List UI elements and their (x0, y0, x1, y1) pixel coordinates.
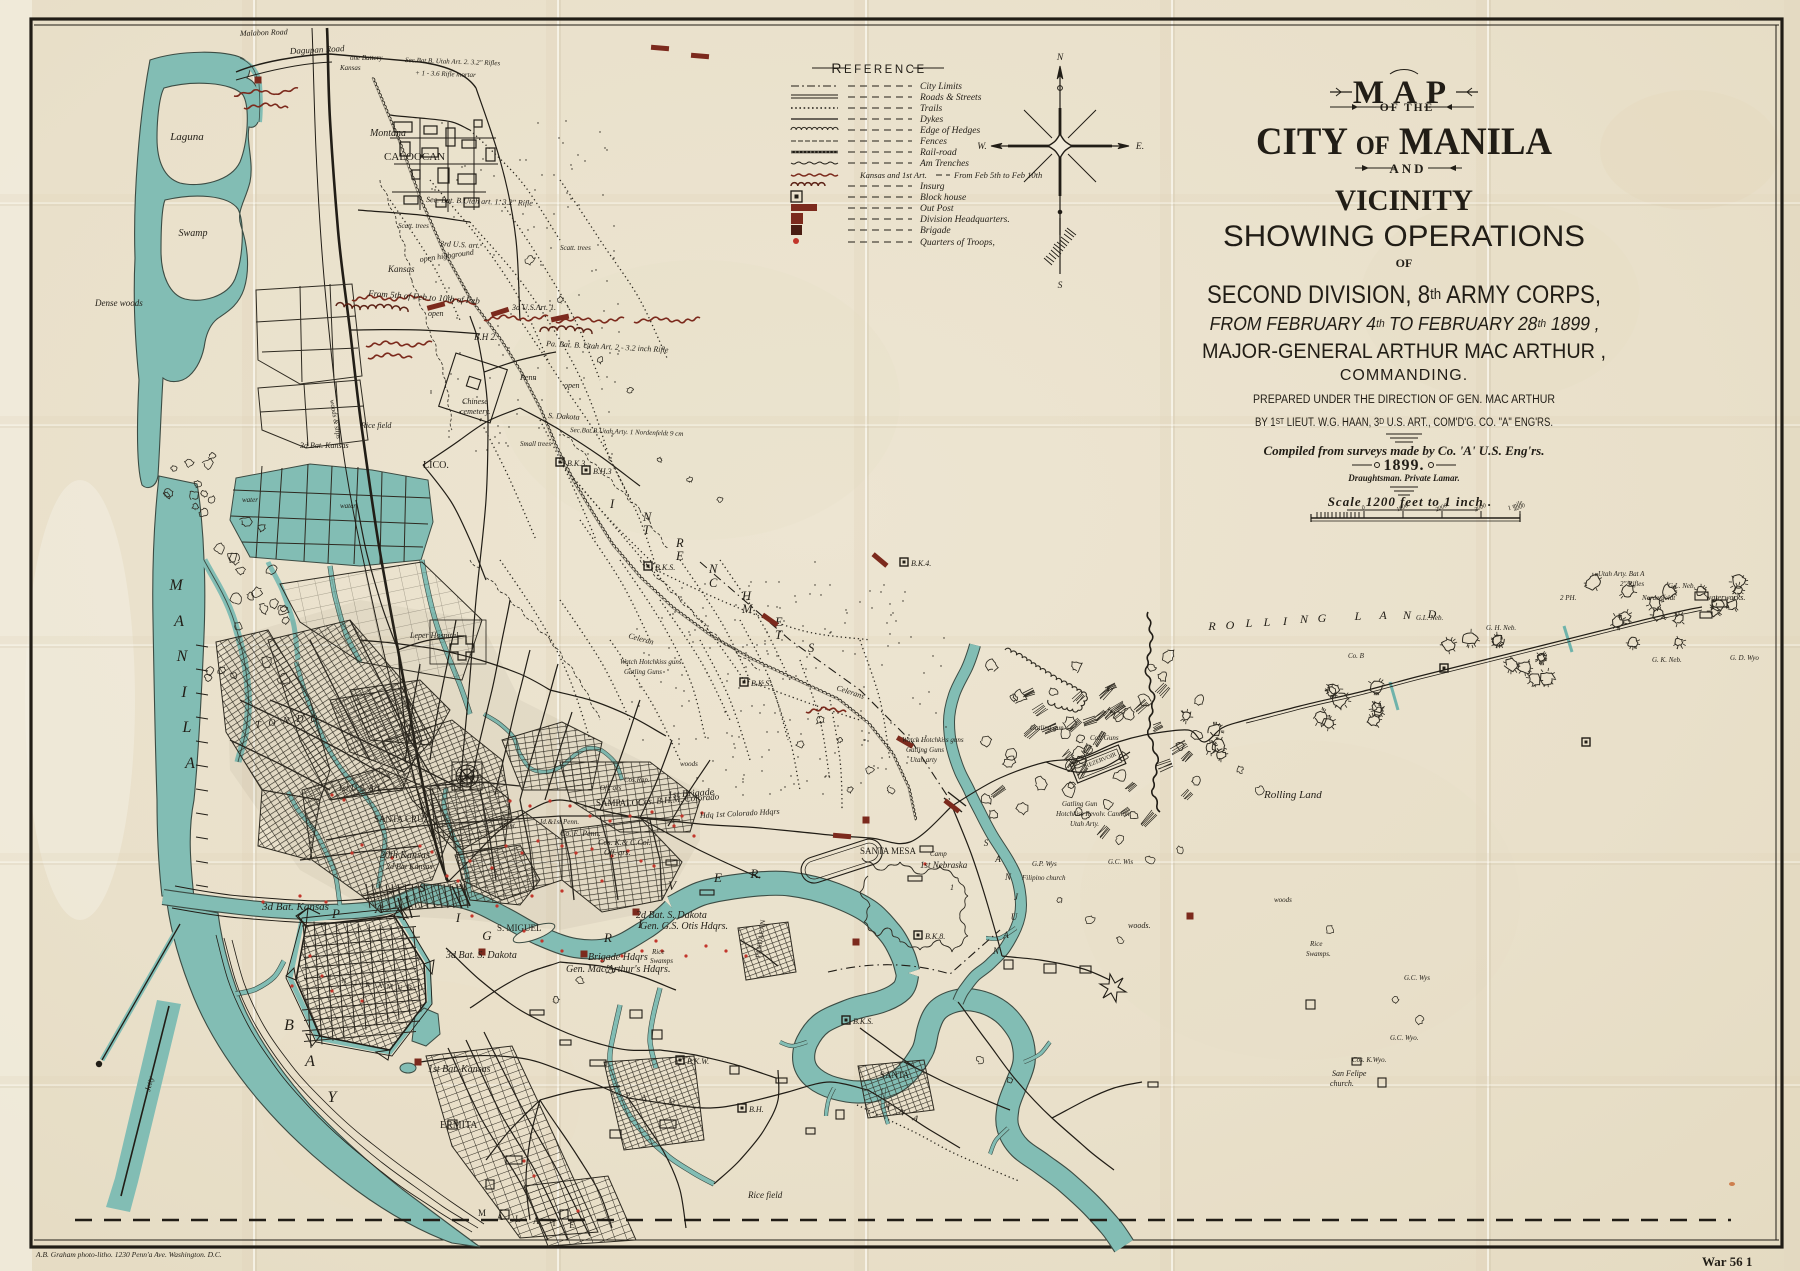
svg-text:R: R (366, 981, 371, 989)
svg-text:1st U.S. Art.: 1st U.S. Art. (338, 783, 382, 793)
svg-text:Cos. K.Wyo.: Cos. K.Wyo. (1352, 1056, 1387, 1064)
svg-text:PREPARED UNDER THE DIRECTION O: PREPARED UNDER THE DIRECTION OF GEN. MAC… (1253, 394, 1555, 406)
svg-text:N: N (176, 648, 189, 665)
svg-text:SHOWING OPERATIONS: SHOWING OPERATIONS (1223, 220, 1585, 253)
svg-text:1899.: 1899. (1384, 457, 1425, 474)
svg-text:B.K.S.: B.K.S. (853, 1017, 873, 1026)
svg-text:Swamps: Swamps (650, 957, 673, 965)
svg-text:Cos.Rap.: Cos.Rap. (624, 776, 650, 784)
svg-text:San Felipe: San Felipe (1332, 1069, 1367, 1078)
svg-text:A: A (1378, 608, 1387, 622)
svg-text:S. MIGUEL: S. MIGUEL (497, 923, 542, 933)
svg-text:Laguna: Laguna (169, 131, 204, 143)
svg-text:Utah arty: Utah arty (910, 756, 938, 764)
svg-text:Gatling Guns: Gatling Guns (624, 668, 662, 676)
svg-text:CITY OF MANILA: CITY OF MANILA (1256, 120, 1552, 163)
svg-text:E: E (569, 1220, 575, 1230)
svg-text:O: O (268, 718, 275, 729)
svg-text:S: S (419, 880, 426, 895)
svg-text:2″ Rifles: 2″ Rifles (1620, 580, 1644, 588)
svg-text:Rail-road: Rail-road (919, 148, 957, 158)
svg-text:Malabon Road: Malabon Road (239, 27, 289, 38)
svg-text:Division Headquarters.: Division Headquarters. (919, 215, 1010, 225)
svg-text:I: I (637, 916, 643, 931)
svg-text:G: G (482, 928, 492, 943)
svg-text:Filipino church: Filipino church (1021, 874, 1066, 882)
svg-text:Rolling Land: Rolling Land (1263, 789, 1322, 801)
svg-text:A: A (641, 1093, 647, 1102)
svg-text:O: O (417, 984, 422, 992)
svg-text:War 56 1: War 56 1 (1702, 1254, 1752, 1269)
svg-text:ERMITA: ERMITA (440, 1120, 478, 1131)
svg-text:Scale 1200 feet to 1 inch .: Scale 1200 feet to 1 inch . (1328, 494, 1493, 509)
svg-text:Roads & Streets: Roads & Streets (919, 93, 982, 103)
svg-text:M: M (168, 577, 184, 594)
svg-text:Camp: Camp (930, 850, 947, 858)
svg-text:G. H. Neb.: G. H. Neb. (1486, 624, 1516, 632)
svg-text:N: N (1056, 53, 1064, 63)
svg-text:1: 1 (950, 883, 954, 892)
svg-text:Dykes: Dykes (919, 115, 944, 125)
svg-text:B.K.S.: B.K.S. (655, 563, 675, 572)
svg-text:S: S (984, 838, 989, 848)
svg-text:Off. qrs.: Off. qrs. (604, 848, 630, 857)
svg-text:Chinese: Chinese (462, 397, 488, 406)
svg-text:3d Bat. Kansas: 3d Bat. Kansas (299, 441, 349, 450)
svg-text:G.P. Wys: G.P. Wys (1032, 860, 1057, 868)
svg-text:church.: church. (1330, 1079, 1354, 1088)
svg-text:AND: AND (1389, 161, 1426, 176)
svg-text:N: N (1402, 608, 1412, 622)
svg-text:woods.: woods. (1128, 921, 1150, 930)
svg-text:SAMPALOC: SAMPALOC (596, 798, 644, 808)
svg-text:U: U (397, 984, 402, 992)
svg-text:COMMANDING.: COMMANDING. (1340, 367, 1468, 384)
svg-text:water: water (340, 502, 356, 510)
svg-text:B.K.S.: B.K.S. (751, 679, 771, 688)
svg-text:Brigade: Brigade (920, 226, 951, 236)
svg-text:Rice: Rice (1309, 940, 1322, 948)
svg-text:Gen. G.S. Otis Hdqrs.: Gen. G.S. Otis Hdqrs. (640, 921, 728, 932)
svg-text:R: R (675, 536, 684, 550)
svg-text:L: L (1354, 609, 1362, 623)
svg-text:A: A (184, 755, 195, 772)
svg-text:Co. B: Co. B (1348, 652, 1365, 660)
svg-text:Brigade Hdqrs: Brigade Hdqrs (588, 952, 648, 963)
svg-text:G.C. Wys: G.C. Wys (1404, 974, 1430, 982)
svg-text:Scatt. trees: Scatt. trees (398, 222, 429, 230)
svg-text:D: D (295, 714, 304, 725)
svg-text:Trails: Trails (920, 104, 942, 114)
svg-text:SECOND DIVISION, 8th ARMY CORP: SECOND DIVISION, 8th ARMY CORPS, (1207, 281, 1601, 309)
svg-text:B.K.4.: B.K.4. (911, 559, 931, 568)
svg-text:B.K.8.: B.K.8. (925, 932, 945, 941)
svg-text:Colt Guns: Colt Guns (1090, 734, 1119, 742)
svg-text:I: I (455, 910, 461, 925)
svg-text:3d U.S.Art. 1.: 3d U.S.Art. 1. (511, 303, 556, 312)
svg-text:Gatling Guns: Gatling Guns (906, 746, 944, 754)
svg-text:From Feb 5th to Feb 10th: From Feb 5th to Feb 10th (953, 170, 1042, 180)
svg-text:Gen. Mac Arthur's Hdqrs.: Gen. Mac Arthur's Hdqrs. (566, 964, 670, 975)
svg-text:Gatling gun: Gatling gun (1030, 724, 1064, 732)
svg-text:I: I (180, 684, 187, 701)
svg-text:one Battery: one Battery (350, 54, 383, 62)
svg-text:Off. qrs: Off. qrs (600, 784, 622, 792)
svg-text:SANTA CRUZ: SANTA CRUZ (374, 814, 429, 824)
svg-text:B.H 2.: B.H 2. (474, 332, 497, 342)
svg-text:O: O (310, 714, 317, 725)
svg-text:D: D (1427, 607, 1437, 621)
svg-text:MAJOR-GENERAL ARTHUR MAC ARTHU: MAJOR-GENERAL ARTHUR MAC ARTHUR , (1202, 340, 1606, 363)
svg-text:SANTA: SANTA (880, 1070, 910, 1080)
svg-text:O: O (669, 1097, 675, 1106)
svg-text:A: A (1002, 930, 1009, 940)
svg-text:open: open (428, 309, 444, 318)
svg-text:Swamps.: Swamps. (1306, 950, 1331, 958)
svg-text:C: C (655, 1095, 660, 1104)
svg-text:Compiled from surveys made by: Compiled from surveys made by Co. 'A' U.… (1264, 443, 1545, 458)
svg-text:G.C. Wis: G.C. Wis (1108, 858, 1133, 866)
svg-text:Mont.: Mont. (499, 822, 517, 830)
svg-text:W.: W. (977, 142, 986, 152)
svg-text:cemetery.: cemetery. (460, 407, 490, 416)
svg-text:C: C (709, 576, 718, 590)
svg-text:OF: OF (1396, 256, 1413, 270)
svg-text:SANTA MESA: SANTA MESA (860, 846, 917, 856)
svg-text:N: N (341, 977, 346, 985)
svg-text:N: N (1299, 612, 1309, 626)
svg-text:Draughtsman. Private Lamar.: Draughtsman. Private Lamar. (1347, 473, 1460, 483)
svg-text:N: N (1004, 872, 1012, 882)
svg-text:B.H.3: B.H.3 (593, 467, 612, 476)
svg-text:Utah Arty. Bat A: Utah Arty. Bat A (1598, 570, 1645, 578)
svg-text:Prison: Prison (457, 775, 474, 781)
svg-text:Nordenfeldt: Nordenfeldt (1641, 594, 1676, 602)
svg-text:A: A (994, 854, 1001, 864)
svg-text:Block house: Block house (920, 193, 966, 203)
svg-text:Watch Hotchkiss guns: Watch Hotchkiss guns (902, 736, 964, 744)
svg-text:G: G (1318, 611, 1327, 625)
svg-text:open: open (564, 381, 580, 390)
svg-text:VICINITY: VICINITY (1335, 184, 1473, 217)
svg-text:Am Trenches: Am Trenches (919, 159, 969, 169)
svg-text:M: M (478, 1208, 486, 1218)
svg-text:2d Bat. S. Dakota: 2d Bat. S. Dakota (636, 910, 707, 921)
svg-text:B.K.W.: B.K.W. (687, 1057, 709, 1066)
svg-text:woods: woods (680, 760, 698, 768)
svg-text:Quarters of Troops,: Quarters of Troops, (920, 237, 995, 248)
svg-text:A: A (533, 1216, 540, 1226)
svg-text:N: N (642, 510, 652, 524)
svg-text:Small trees: Small trees (520, 440, 551, 448)
svg-text:A: A (374, 901, 383, 916)
svg-text:City Limits: City Limits (920, 82, 962, 92)
svg-text:waterworks.: waterworks. (1706, 593, 1745, 602)
svg-text:2 PH.: 2 PH. (1560, 594, 1577, 602)
svg-text:L: L (1263, 615, 1271, 629)
svg-text:R: R (603, 930, 612, 945)
svg-text:water: water (242, 496, 258, 504)
svg-text:E.: E. (1135, 142, 1144, 152)
svg-text:G.L. Neb.: G.L. Neb. (1668, 582, 1695, 590)
svg-text:A.B. Graham photo-litho. 1230: A.B. Graham photo-litho. 1230 Penn'a Ave… (35, 1250, 222, 1259)
svg-text:Kansas and 1st Art.: Kansas and 1st Art. (859, 170, 927, 180)
svg-text:S: S (1058, 281, 1063, 291)
svg-text:A: A (377, 982, 382, 990)
svg-text:CALOOCAN: CALOOCAN (384, 151, 445, 163)
svg-text:Montana: Montana (369, 128, 406, 139)
svg-text:A: A (173, 613, 184, 630)
svg-text:Fences: Fences (919, 137, 947, 147)
svg-text:Insurg: Insurg (919, 182, 945, 192)
svg-text:Out Post: Out Post (920, 204, 954, 214)
svg-text:R.: R. (749, 866, 761, 881)
svg-text:L: L (1245, 616, 1253, 630)
svg-text:3d Bat. S. Dakota: 3d Bat. S. Dakota (445, 950, 517, 961)
svg-text:2d Bat Kansas: 2d Bat Kansas (386, 862, 433, 871)
svg-text:woods: woods (1274, 896, 1292, 904)
svg-text:Rice field: Rice field (360, 421, 392, 430)
svg-text:1st Bat. Kansas: 1st Bat. Kansas (428, 1064, 491, 1075)
svg-text:BY 1ST LIEUT. W.G. HAAN, 3D U.: BY 1ST LIEUT. W.G. HAAN, 3D U.S. ART., C… (1255, 417, 1553, 429)
svg-text:B.H.: B.H. (749, 1105, 764, 1114)
svg-text:Hotchkiss Revolv. Cannon: Hotchkiss Revolv. Cannon (1055, 810, 1130, 818)
svg-text:P: P (331, 906, 340, 921)
svg-text:B: B (284, 1017, 294, 1034)
svg-text:G. K. Neb.: G. K. Neb. (1652, 656, 1682, 664)
svg-text:LICO.: LICO. (423, 460, 449, 471)
svg-text:Edge of Hedges: Edge of Hedges (919, 125, 980, 136)
svg-text:G. D. Wyo: G. D. Wyo (1730, 654, 1759, 662)
svg-text:Watch Hotchkiss guns: Watch Hotchkiss guns (620, 658, 682, 666)
svg-text:Kansas: Kansas (387, 264, 415, 274)
svg-text:R: R (1207, 619, 1216, 633)
svg-text:Kansas: Kansas (339, 64, 361, 72)
svg-text:O: O (1226, 618, 1235, 632)
svg-text:20th Kansas: 20th Kansas (380, 850, 430, 861)
svg-text:G.C. Wyo.: G.C. Wyo. (1390, 1034, 1419, 1042)
svg-text:M: M (387, 983, 394, 991)
svg-text:Co. E. Penn.: Co. E. Penn. (560, 829, 601, 838)
svg-text:R: R (408, 984, 413, 992)
svg-text:Rice field: Rice field (747, 1190, 783, 1200)
svg-text:Cos. K.& C.Col.: Cos. K.& C.Col. (598, 838, 651, 847)
svg-text:S. Dakota: S. Dakota (548, 411, 580, 422)
svg-text:Dense woods: Dense woods (94, 298, 143, 308)
svg-text:Scatt. trees: Scatt. trees (560, 244, 591, 252)
svg-text:E: E (713, 870, 722, 885)
svg-text:T: T (354, 979, 359, 987)
svg-text:Utah Arty.: Utah Arty. (1070, 820, 1099, 828)
svg-text:Penn: Penn (519, 373, 536, 382)
svg-text:OF THE: OF THE (1380, 102, 1435, 114)
svg-text:Rice: Rice (651, 948, 664, 956)
svg-text:Gatling Gun: Gatling Gun (1062, 800, 1098, 808)
svg-text:P: P (626, 1091, 631, 1100)
svg-text:I: I (609, 497, 615, 511)
svg-text:Swamp: Swamp (179, 228, 208, 239)
svg-text:A: A (304, 1053, 315, 1070)
svg-text:Leper Hospital: Leper Hospital (409, 631, 459, 640)
svg-text:N: N (282, 716, 291, 727)
svg-text:E: E (675, 549, 684, 563)
svg-text:H: H (741, 589, 752, 603)
svg-text:N: N (708, 562, 718, 576)
svg-text:1st Nebraska: 1st Nebraska (920, 860, 968, 870)
svg-text:S: S (808, 641, 815, 655)
svg-text:N: N (992, 946, 1000, 956)
svg-text:L: L (182, 719, 192, 736)
svg-text:3d Bat. Kansas: 3d Bat. Kansas (261, 901, 329, 913)
svg-text:Id.&1st Penn.: Id.&1st Penn. (539, 818, 579, 826)
svg-text:U: U (1011, 912, 1018, 922)
